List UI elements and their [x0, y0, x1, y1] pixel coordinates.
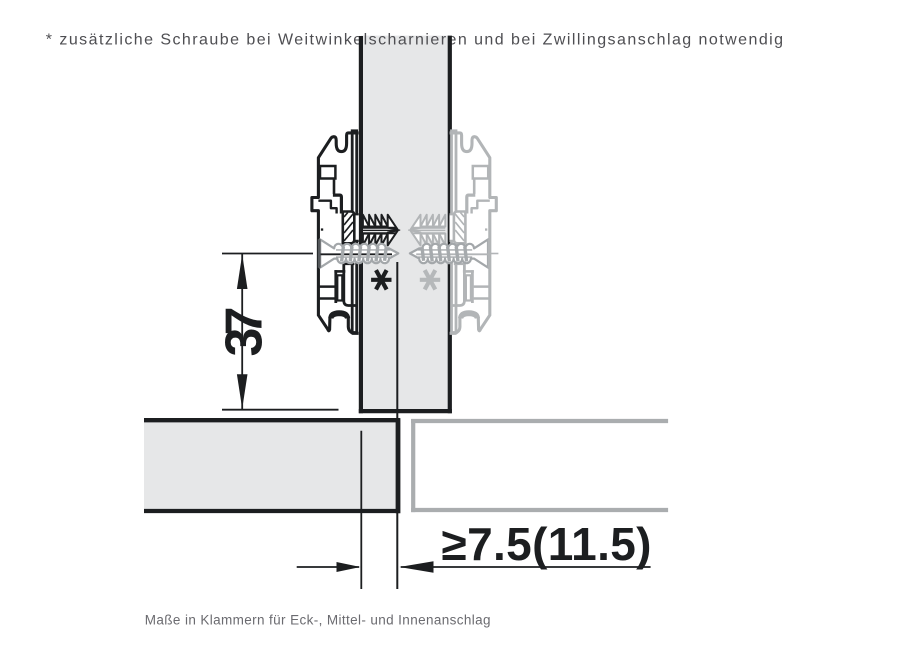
svg-text:Maße in Klammern für Eck-, Mit: Maße in Klammern für Eck-, Mittel- und I…: [145, 613, 491, 628]
svg-text:≥7.5(11.5): ≥7.5(11.5): [442, 518, 652, 570]
svg-text:37: 37: [216, 307, 274, 357]
svg-text:* zusätzliche Schraube bei Wei: * zusätzliche Schraube bei Weitwinkelsch…: [46, 31, 785, 48]
